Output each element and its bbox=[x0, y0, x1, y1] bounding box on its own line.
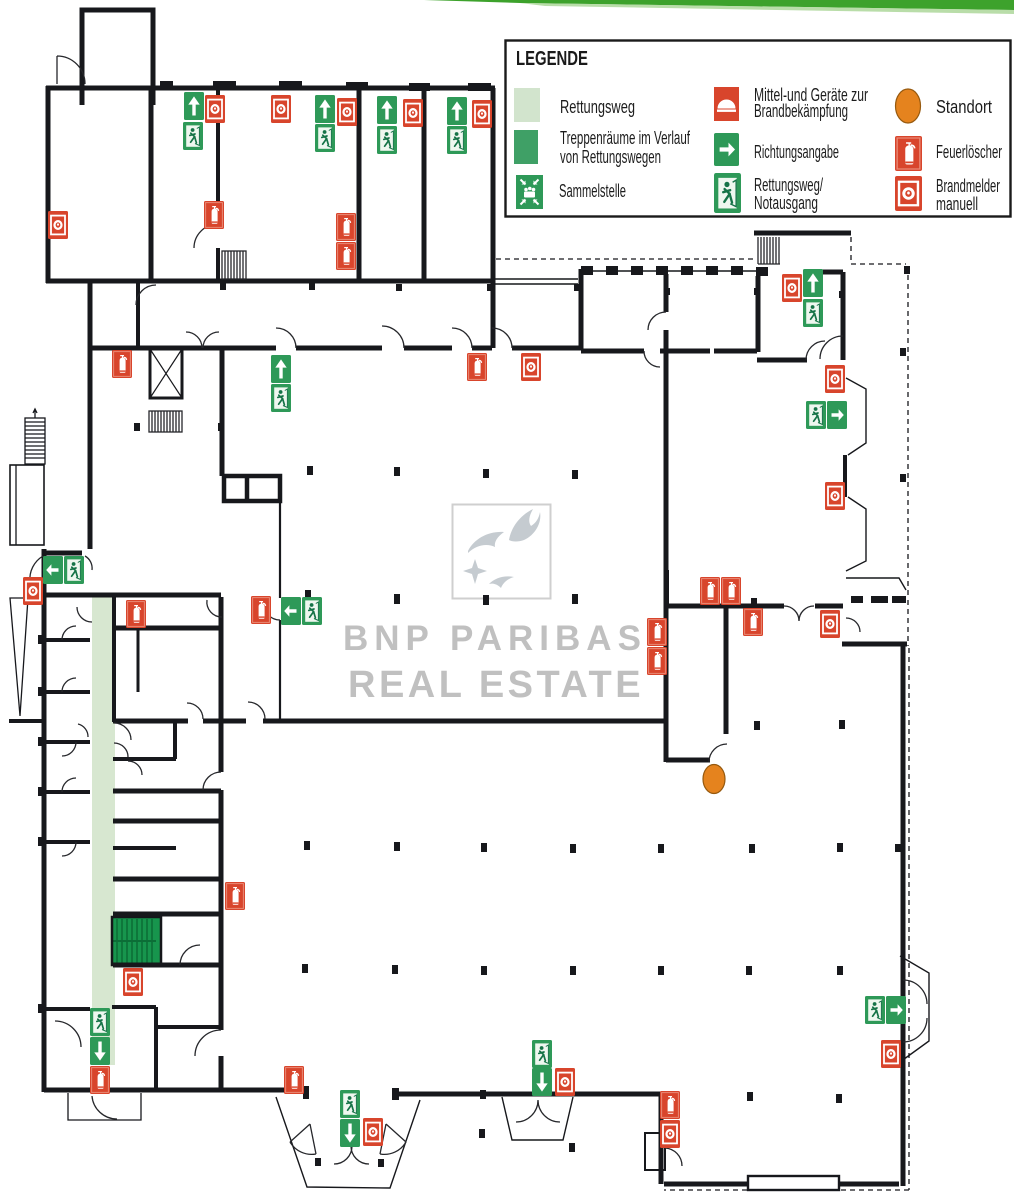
svg-text:LEGENDE: LEGENDE bbox=[516, 48, 588, 70]
svg-text:BNP PARIBAS: BNP PARIBAS bbox=[343, 619, 647, 658]
svg-text:Feuerlöscher: Feuerlöscher bbox=[936, 142, 1002, 162]
svg-text:Sammelstelle: Sammelstelle bbox=[559, 181, 626, 201]
svg-text:Standort: Standort bbox=[936, 97, 992, 117]
svg-text:manuell: manuell bbox=[936, 194, 978, 214]
svg-text:Brandbekämpfung: Brandbekämpfung bbox=[754, 101, 848, 121]
svg-text:Rettungsweg: Rettungsweg bbox=[560, 97, 635, 117]
svg-text:Brandmelder: Brandmelder bbox=[936, 176, 1000, 196]
svg-text:REAL ESTATE: REAL ESTATE bbox=[348, 664, 644, 706]
svg-text:Notausgang: Notausgang bbox=[754, 193, 818, 213]
svg-text:von Rettungswegen: von Rettungswegen bbox=[560, 147, 661, 167]
svg-text:Treppenräume im Verlauf: Treppenräume im Verlauf bbox=[560, 128, 691, 148]
svg-text:Richtungsangabe: Richtungsangabe bbox=[754, 142, 839, 162]
svg-text:Rettungsweg/: Rettungsweg/ bbox=[754, 175, 823, 195]
